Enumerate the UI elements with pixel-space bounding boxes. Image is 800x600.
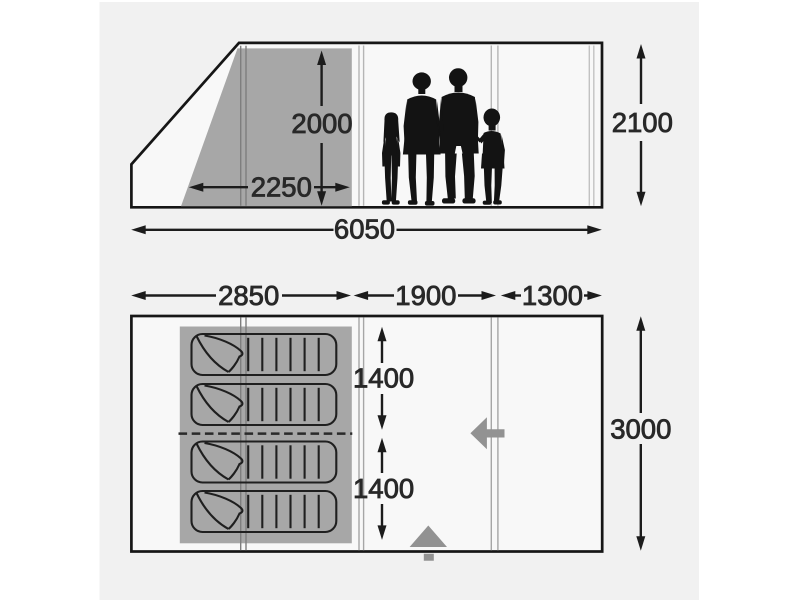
svg-text:1300: 1300 xyxy=(522,280,583,311)
svg-text:2100: 2100 xyxy=(612,107,673,138)
svg-text:3000: 3000 xyxy=(610,413,671,444)
svg-text:6050: 6050 xyxy=(334,214,395,245)
svg-text:1400: 1400 xyxy=(353,473,414,504)
svg-text:1900: 1900 xyxy=(395,280,456,311)
svg-text:2250: 2250 xyxy=(251,172,312,203)
svg-text:1400: 1400 xyxy=(353,362,414,393)
svg-text:2850: 2850 xyxy=(218,280,279,311)
svg-text:2000: 2000 xyxy=(291,108,352,139)
